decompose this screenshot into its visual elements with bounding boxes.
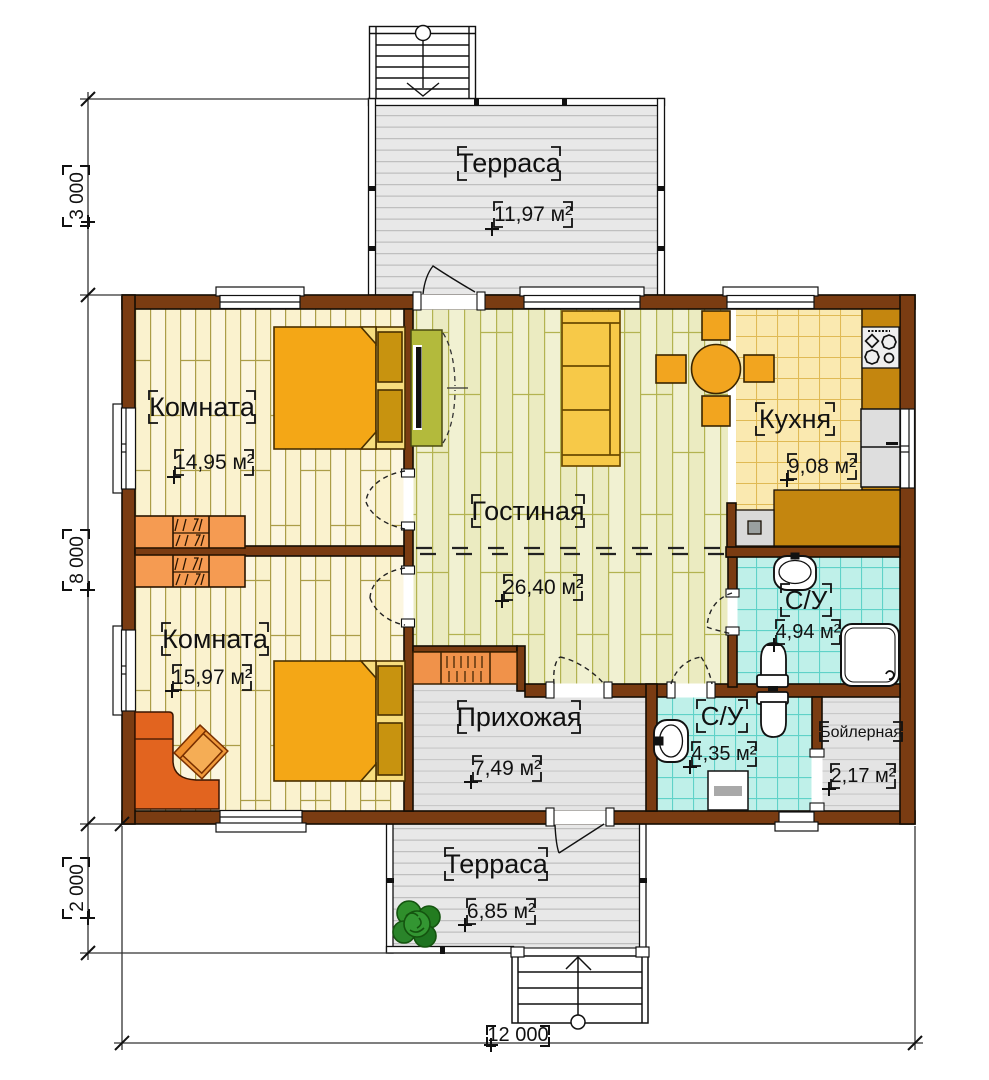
svg-text:8 000: 8 000	[67, 536, 88, 584]
svg-text:Гостиная: Гостиная	[471, 496, 584, 526]
svg-text:3 000: 3 000	[67, 172, 88, 220]
svg-text:Терраса: Терраса	[444, 849, 549, 879]
svg-text:Терраса: Терраса	[457, 148, 562, 178]
svg-text:Кухня: Кухня	[759, 404, 831, 434]
svg-text:4,35 м²: 4,35 м²	[692, 743, 757, 765]
svg-text:26,40 м²: 26,40 м²	[503, 576, 583, 599]
svg-text:6,85 м²: 6,85 м²	[467, 900, 535, 923]
svg-text:Комната: Комната	[162, 624, 269, 654]
svg-text:2,17 м²: 2,17 м²	[831, 765, 896, 787]
svg-text:Бойлерная: Бойлерная	[820, 724, 902, 741]
svg-text:2 000: 2 000	[67, 864, 88, 912]
svg-text:Комната: Комната	[149, 392, 256, 422]
svg-text:12 000: 12 000	[487, 1024, 548, 1046]
svg-text:С/У: С/У	[701, 701, 744, 731]
svg-text:11,97 м²: 11,97 м²	[494, 203, 572, 226]
svg-text:9,08 м²: 9,08 м²	[788, 455, 856, 478]
svg-text:4,94 м²: 4,94 м²	[776, 621, 841, 643]
svg-text:Прихожая: Прихожая	[456, 702, 581, 732]
svg-text:С/У: С/У	[785, 585, 828, 615]
svg-text:14,95 м²: 14,95 м²	[174, 451, 254, 474]
svg-text:15,97 м²: 15,97 м²	[172, 666, 252, 689]
svg-text:7,49 м²: 7,49 м²	[473, 757, 541, 780]
